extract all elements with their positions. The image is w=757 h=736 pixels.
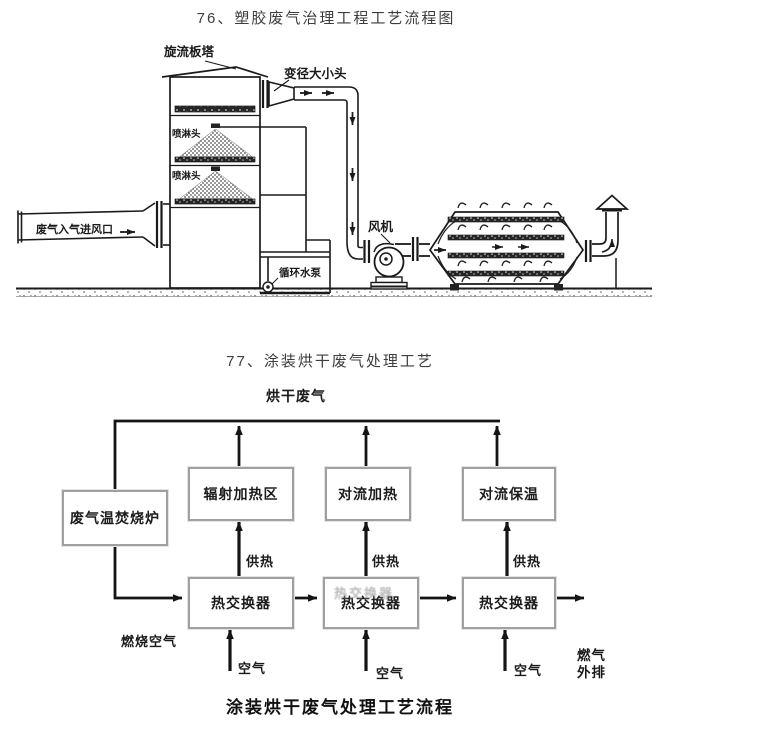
exhaust-stack bbox=[586, 196, 627, 289]
heat-exchanger1-box: 热交换器 bbox=[188, 577, 294, 629]
air3-label: 空气 bbox=[514, 660, 542, 679]
fan-pointer-line bbox=[381, 234, 390, 243]
document-page: 76、塑胶废气治理工程工艺流程图 bbox=[0, 0, 757, 736]
diagram76-scrubber-flow-diagram: 喷淋头 喷淋头 循环水泵 bbox=[0, 0, 757, 345]
combustion-air-label: 燃烧空气 bbox=[121, 631, 177, 650]
inlet-label: 废气入气进风口 bbox=[36, 222, 113, 236]
incinerator-to-hx1-arrow bbox=[115, 542, 182, 598]
incinerator-box: 废气温焚烧炉 bbox=[62, 490, 168, 546]
reducer-label: 变径大小头 bbox=[284, 66, 347, 81]
convection-holding-box: 对流保温 bbox=[462, 467, 556, 521]
drying-gas-header-line bbox=[115, 421, 500, 490]
heat-exchanger2-ghost-text: 热交换器 bbox=[334, 583, 394, 602]
air1-label: 空气 bbox=[238, 658, 266, 677]
spray-section-1 bbox=[180, 124, 306, 157]
duct-flow-arrows bbox=[300, 93, 353, 235]
supply3-label: 供热 bbox=[513, 551, 541, 570]
tower-pointer-line bbox=[205, 61, 236, 69]
adsorber-flow-marks bbox=[434, 203, 577, 282]
pump-label: 循环水泵 bbox=[279, 266, 321, 279]
convection-heating-box: 对流加热 bbox=[325, 467, 411, 521]
fan-label: 风机 bbox=[368, 219, 394, 234]
diagram77-caption: 涂装烘干废气处理工艺流程 bbox=[150, 693, 530, 718]
drying-gas-label: 烘干废气 bbox=[266, 386, 326, 406]
fan bbox=[371, 237, 430, 289]
supply2-label: 供热 bbox=[372, 551, 400, 570]
heat-exchanger3-box: 热交换器 bbox=[462, 577, 556, 629]
diagram77-title: 77、涂装烘干废气处理工艺 bbox=[30, 350, 630, 371]
exhaust-label-line2: 外排 bbox=[577, 661, 606, 681]
spray2-label: 喷淋头 bbox=[172, 170, 201, 182]
air2-label: 空气 bbox=[376, 663, 404, 682]
supply1-label: 供热 bbox=[246, 551, 274, 570]
tower-label: 旋流板塔 bbox=[163, 44, 215, 59]
spray1-label: 喷淋头 bbox=[172, 128, 201, 140]
radiant-heating-box: 辐射加热区 bbox=[188, 467, 294, 521]
